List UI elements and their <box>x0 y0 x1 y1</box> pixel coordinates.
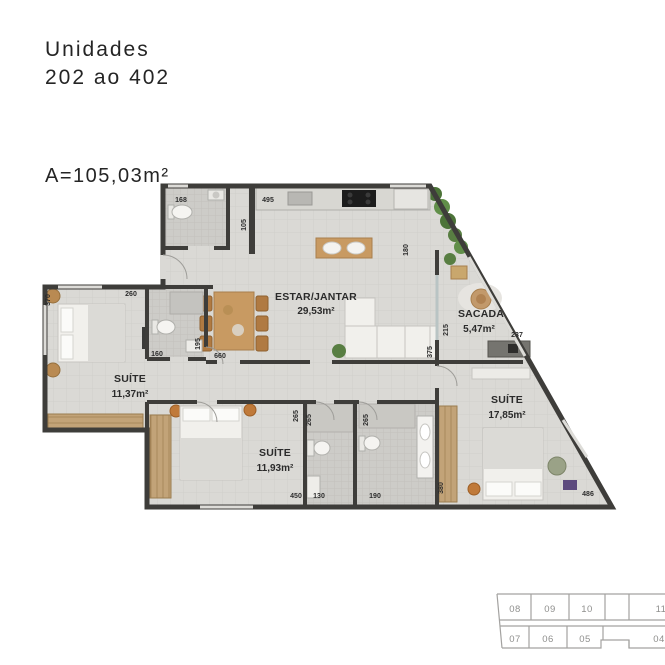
unit-10: 10 <box>581 604 593 615</box>
unit-06: 06 <box>542 634 554 645</box>
toilet-icon <box>157 320 175 334</box>
floorplan-drawing: ESTAR/JANTAR 29,53m² SACADA 5,47m² SUÍTE… <box>40 180 640 530</box>
dim: 265 <box>363 414 370 426</box>
dim: 105 <box>241 219 248 231</box>
dim: 265 <box>306 414 313 426</box>
unit-09: 09 <box>544 604 556 615</box>
side-table <box>451 266 467 279</box>
suite1-label: SUÍTE <box>114 372 146 385</box>
dim: 168 <box>175 197 187 204</box>
plant-icon <box>332 344 346 358</box>
dim: 160 <box>151 351 163 358</box>
title-line-1: Unidades <box>45 36 170 64</box>
title-line-2: 202 ao 402 <box>45 64 170 92</box>
unit-07: 07 <box>509 634 521 645</box>
toilet-icon <box>172 205 192 219</box>
key-plan-units: 08 09 10 11 07 06 05 04 <box>509 604 665 645</box>
closet-suite2 <box>150 415 171 498</box>
suite2-label: SUÍTE <box>259 446 291 459</box>
dim: 450 <box>290 493 302 500</box>
plan-title: Unidades 202 ao 402 <box>45 36 170 92</box>
dim: 180 <box>403 244 410 256</box>
nightstand <box>46 363 60 377</box>
living-area: 29,53m² <box>297 306 335 317</box>
unit-11: 11 <box>656 604 665 615</box>
sconce <box>244 404 256 416</box>
sacada-label: SACADA <box>458 308 504 320</box>
dining-table <box>214 292 254 350</box>
suite2-area: 11,93m² <box>257 463 294 474</box>
dim: 130 <box>313 493 325 500</box>
key-plan: 08 09 10 11 07 06 05 04 <box>485 582 665 662</box>
dim: 380 <box>438 482 445 494</box>
suite3-label: SUÍTE <box>491 393 523 406</box>
lamp <box>468 483 480 495</box>
toilet-icon <box>314 441 330 455</box>
unit-08: 08 <box>509 604 521 615</box>
toilet-icon <box>364 436 380 450</box>
dim: 486 <box>582 491 594 498</box>
dim: 195 <box>195 338 202 350</box>
dim: 495 <box>262 197 274 204</box>
dim: 190 <box>369 493 381 500</box>
dim: 237 <box>511 332 523 339</box>
shower <box>170 292 203 314</box>
tv-icon <box>142 327 145 349</box>
dim: 660 <box>214 353 226 360</box>
dining-set <box>200 292 268 351</box>
dim: 265 <box>293 410 300 422</box>
bench <box>472 368 530 379</box>
suite1-area: 11,37m² <box>112 389 149 400</box>
fridge <box>394 189 428 209</box>
dim: 370 <box>45 294 52 306</box>
pouf <box>548 457 566 475</box>
dim: 215 <box>443 324 450 336</box>
unit-05: 05 <box>579 634 591 645</box>
living-label: ESTAR/JANTAR <box>275 291 357 303</box>
cushion <box>563 480 577 490</box>
suite3-area: 17,85m² <box>488 410 526 421</box>
dim: 375 <box>427 346 434 358</box>
kitchen-sink <box>288 192 312 205</box>
cooktop <box>342 190 376 207</box>
dim: 260 <box>125 291 137 298</box>
closet-suite1 <box>48 414 143 428</box>
unit-04: 04 <box>653 634 665 645</box>
sacada-area: 5,47m² <box>463 324 495 335</box>
